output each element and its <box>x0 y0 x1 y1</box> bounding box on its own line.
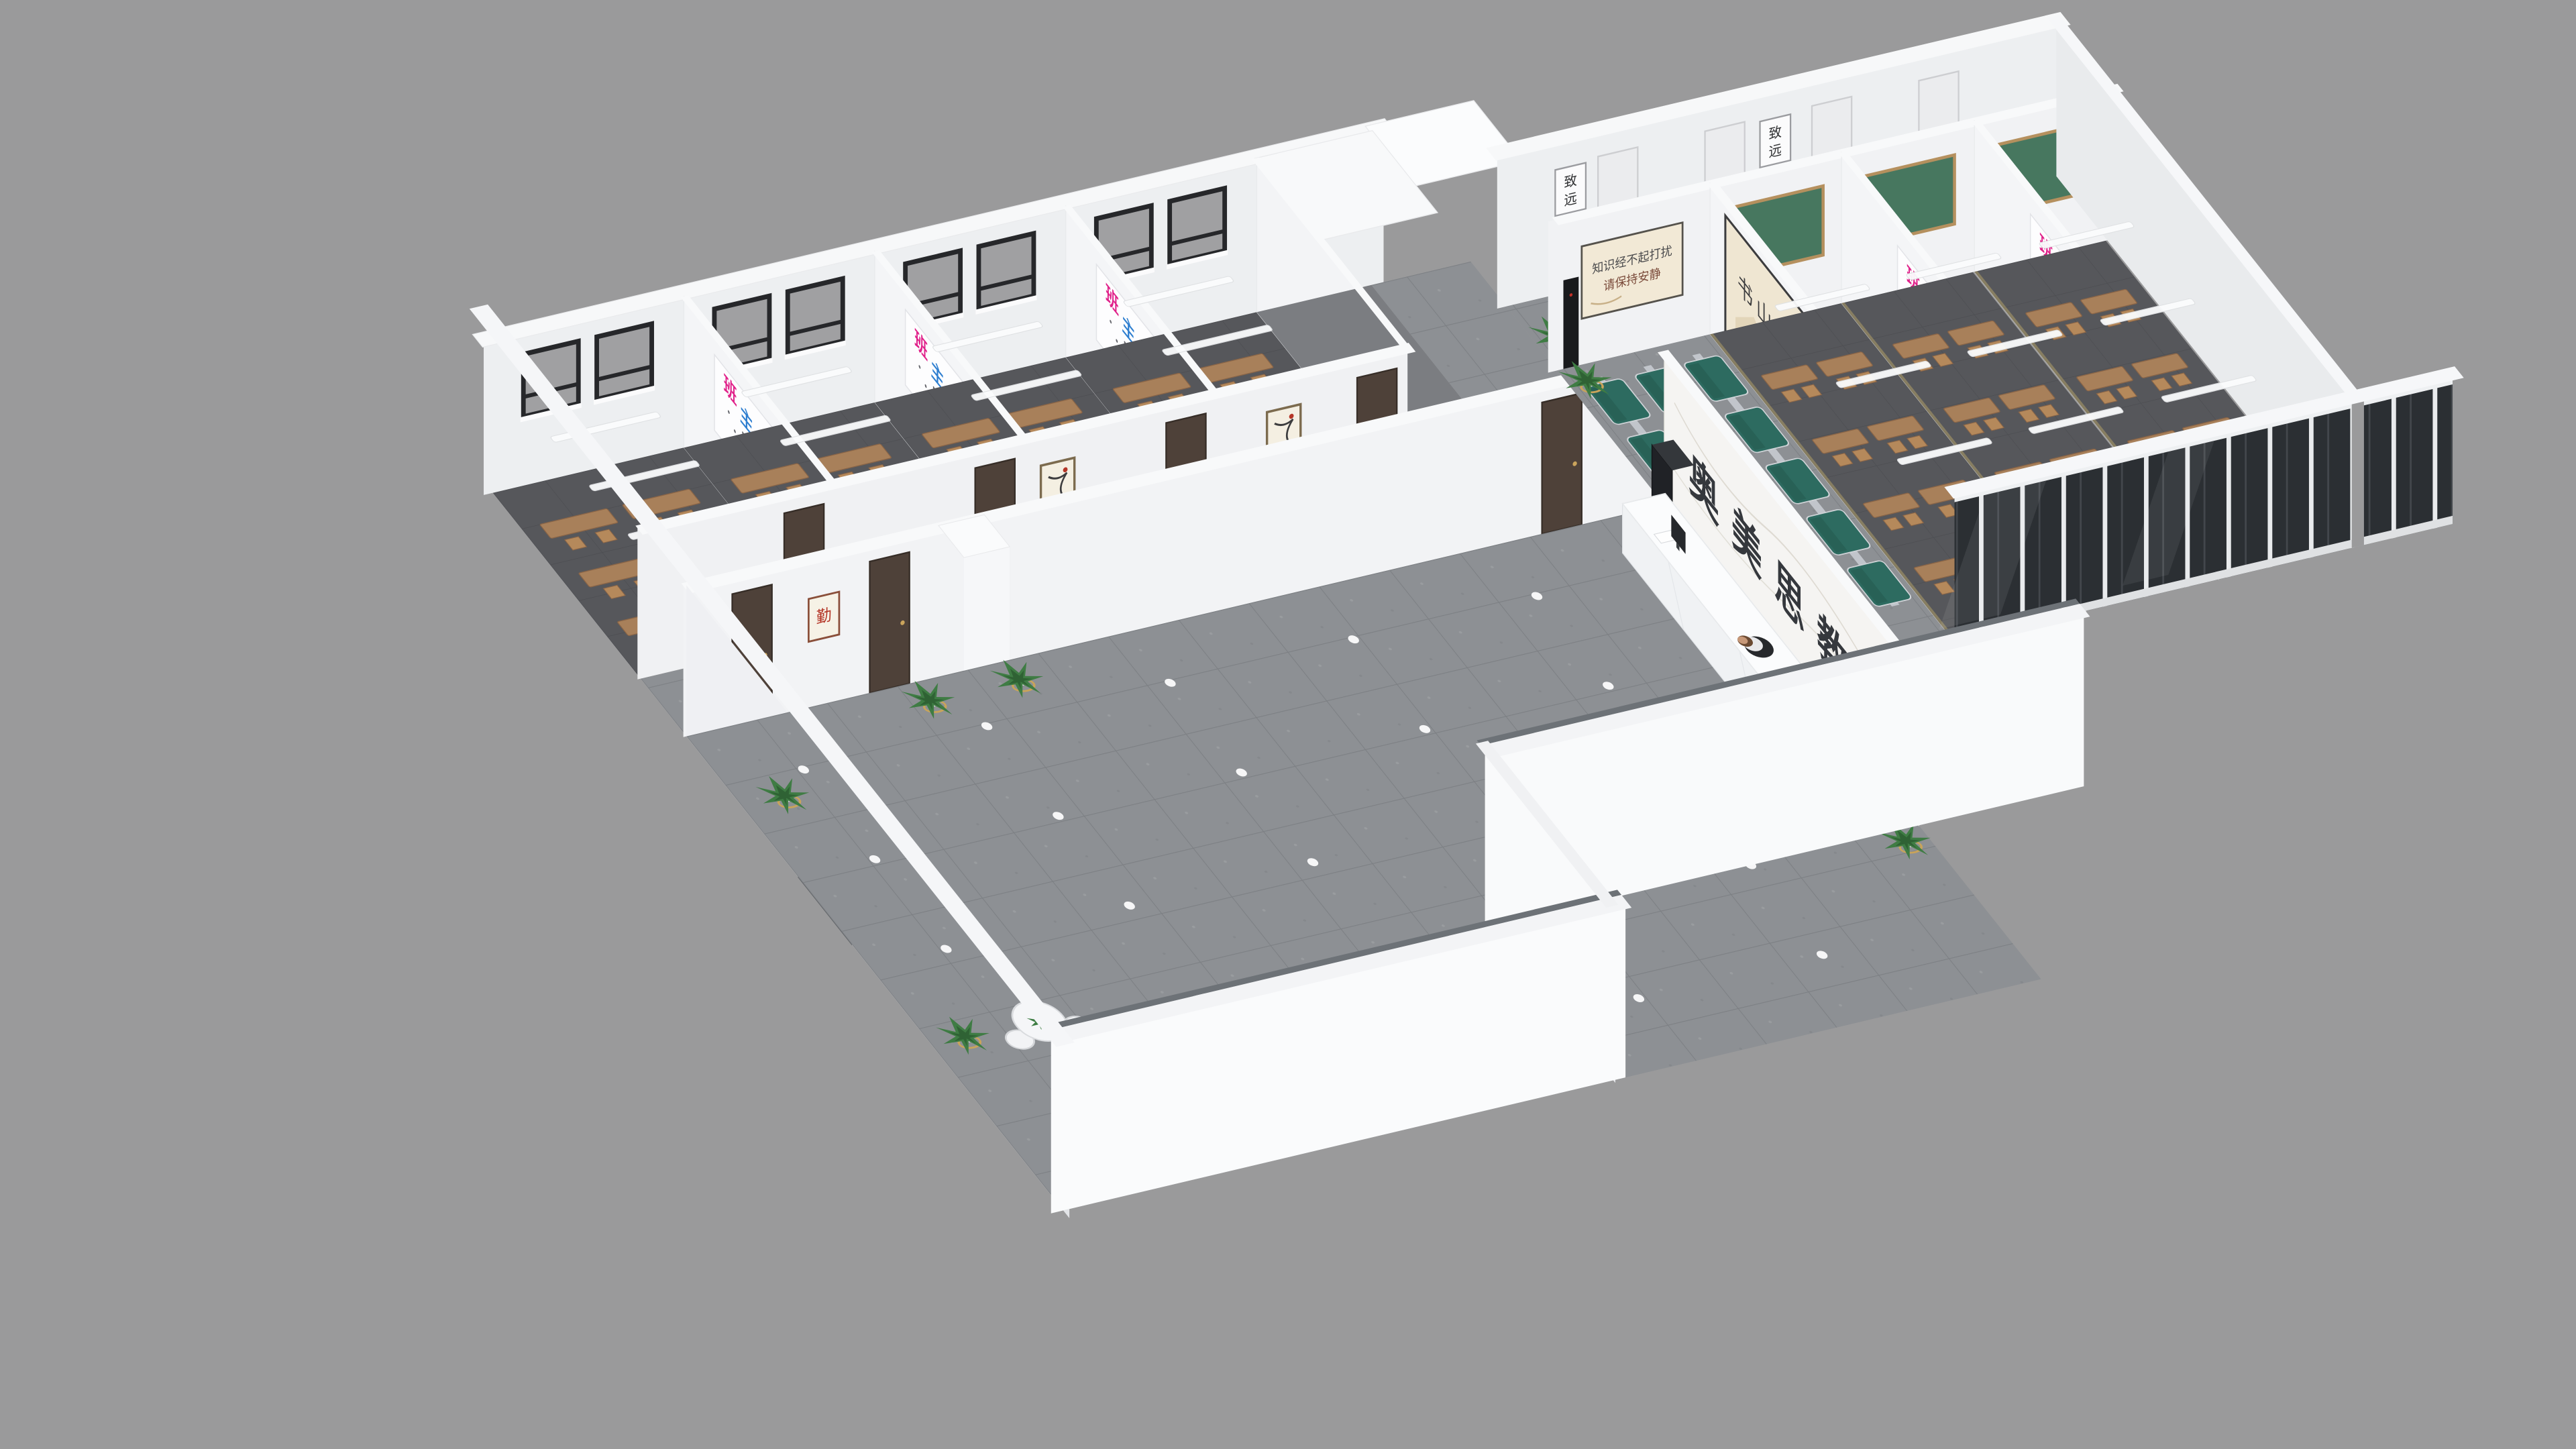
facade-gap <box>2352 394 2364 548</box>
floorplan-render: 班 主 任 寄 语 致 远 勤 <box>0 0 2576 1449</box>
render-stage: 班 主 任 寄 语 致 远 勤 <box>0 0 2576 1449</box>
water-dispenser <box>1563 276 1578 369</box>
